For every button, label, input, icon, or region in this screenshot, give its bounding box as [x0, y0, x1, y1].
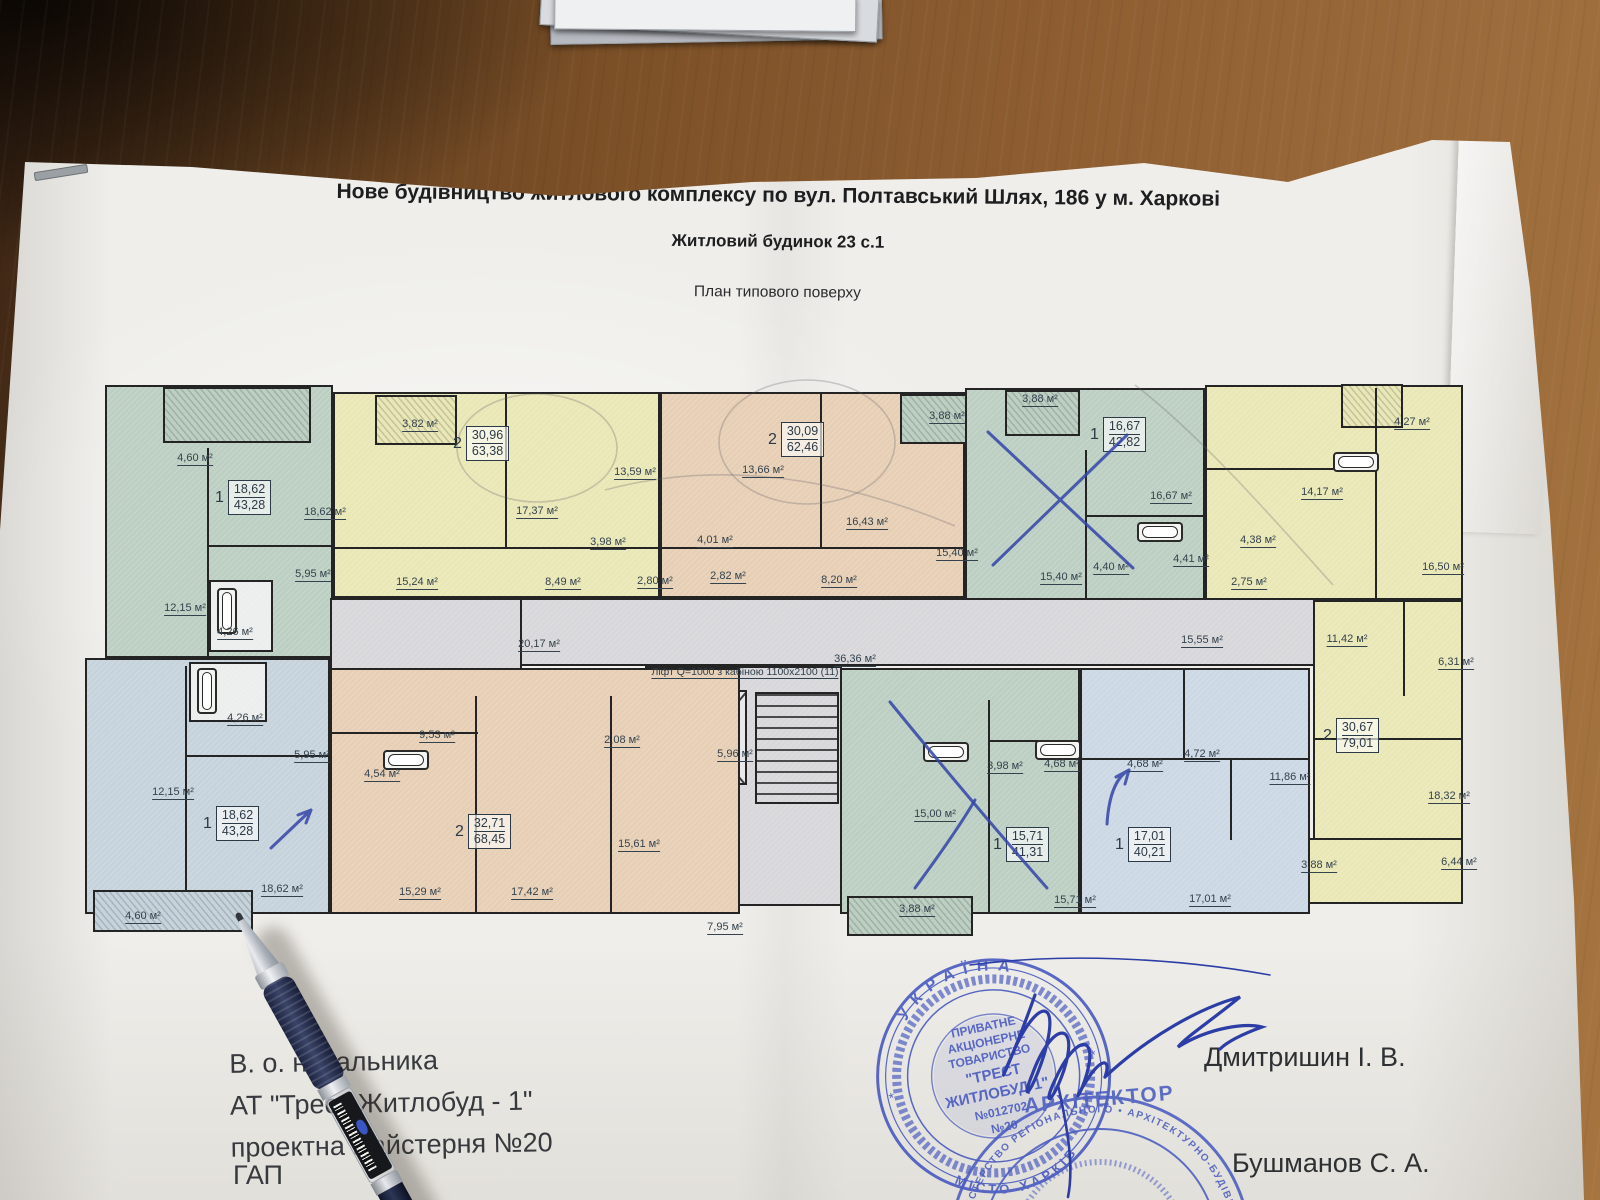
apartment-B3 [840, 668, 1080, 914]
room-area-label: 3,82 м² [402, 418, 438, 432]
photographed-floor-plan-scene: Нове будівництво житлового комплексу по … [0, 0, 1600, 1200]
room-area-label: 12,15 м² [164, 602, 206, 616]
unit-rooms: 2 [455, 823, 464, 841]
room-area-label: 15,40 м² [936, 547, 978, 561]
room-area-label: 11,42 м² [1327, 633, 1368, 647]
unit-label-A4: 1 16,6742,82 [1090, 417, 1146, 452]
room-area-label: 2,75 м² [1231, 576, 1267, 590]
unit-label-A1: 1 18,6243,28 [215, 480, 271, 515]
room-area-label: 5,95 м² [295, 568, 331, 582]
room-area-label: 15,00 м² [914, 808, 956, 822]
room-area-label: 4,60 м² [177, 452, 213, 466]
room-area-label: 16,43 м² [846, 516, 888, 530]
unit-area-total: 62,46 [787, 440, 818, 455]
signature [940, 935, 1360, 1200]
unit-label-A5: 2 30,6779,01 [1323, 718, 1379, 753]
unit-label-B3: 1 15,7141,31 [993, 827, 1049, 862]
room-area-label: 2,82 м² [710, 570, 746, 584]
stacked-sheet [554, 0, 856, 32]
room-area-label: 4,26 м² [227, 712, 263, 726]
room-area-label: 36,36 м² [834, 653, 876, 667]
room-area-label: 11,86 м² [1270, 771, 1311, 785]
room-area-label: 17,37 м² [516, 505, 558, 519]
room-area-label: 13,66 м² [742, 464, 784, 478]
footer-line-2: АТ "Трест Житлобуд - 1" [230, 1079, 553, 1127]
unit-area-total: 43,28 [234, 498, 265, 513]
unit-area-living: 30,96 [472, 428, 503, 444]
unit-area-living: 18,62 [234, 482, 265, 498]
elevator-note: Ліфт Q=1000 з кабіною 1100х2100 (11) [651, 666, 838, 679]
unit-rooms: 2 [768, 431, 777, 449]
plan-caption: План типового поверху [0, 277, 1557, 309]
unit-rooms: 2 [1323, 727, 1332, 745]
unit-area-living: 32,71 [474, 816, 505, 832]
unit-area-living: 30,09 [787, 424, 818, 440]
unit-label-B2: 2 32,7168,45 [455, 814, 511, 849]
unit-area-total: 42,82 [1109, 435, 1140, 450]
room-area-label: 15,40 м² [1040, 571, 1082, 585]
room-area-label: 20,17 м² [518, 638, 560, 652]
room-area-label: 16,67 м² [1150, 490, 1192, 504]
room-area-label: 14,17 м² [1301, 486, 1343, 500]
unit-area-living: 16,67 [1109, 419, 1140, 435]
room-area-label: 16,50 м² [1422, 561, 1464, 575]
room-area-label: 18,62 м² [261, 883, 303, 897]
room-area-label: 4,38 м² [1240, 534, 1276, 548]
document-title: Нове будівництво житлового комплексу по … [0, 177, 1558, 215]
bathtub-icon [923, 742, 969, 762]
unit-rooms: 1 [1090, 426, 1099, 444]
footer-gap-label: ГАП [233, 1160, 283, 1191]
room-area-label: 17,42 м² [511, 886, 553, 900]
room-area-label: 3,88 м² [929, 410, 965, 424]
room-area-label: 4,60 м² [125, 910, 161, 924]
floor-plan: 4,60 м² 18,62 м² 5,95 м² 12,15 м² 4,26 м… [85, 340, 1475, 940]
unit-area-total: 41,31 [1012, 845, 1043, 860]
room-area-label: 7,95 м² [707, 921, 743, 935]
unit-label-B1: 1 18,6243,28 [203, 806, 259, 841]
bathtub-icon [1035, 740, 1081, 760]
room-area-label: 3,98 м² [590, 536, 626, 550]
bathtub-icon [1333, 452, 1379, 472]
room-area-label: 6,44 м² [1441, 856, 1477, 870]
room-area-label: 4,40 м² [1093, 561, 1129, 575]
room-area-label: 18,32 м² [1428, 790, 1470, 804]
room-area-label: 4,41 м² [1173, 553, 1209, 567]
apartment-B2 [330, 668, 740, 914]
room-area-label: 13,59 м² [614, 466, 656, 480]
room-area-label: 3,88 м² [1301, 859, 1337, 873]
room-area-label: 15,24 м² [396, 576, 438, 590]
room-area-label: 15,55 м² [1181, 634, 1223, 648]
room-area-label: 18,62 м² [304, 506, 346, 520]
unit-rooms: 1 [1115, 836, 1124, 854]
bathtub-icon [1137, 522, 1183, 542]
room-area-label: 15,61 м² [618, 838, 660, 852]
room-area-label: 9,53 м² [419, 729, 455, 743]
room-area-label: 5,95 м² [294, 749, 330, 763]
apartment-B4 [1080, 668, 1310, 914]
room-area-label: 4,27 м² [1394, 416, 1430, 430]
room-area-label: 2,08 м² [604, 734, 640, 748]
unit-rooms: 2 [453, 435, 462, 453]
unit-area-total: 43,28 [222, 824, 253, 839]
room-area-label: 4,68 м² [1127, 758, 1163, 772]
room-area-label: 6,31 м² [1438, 656, 1474, 670]
unit-rooms: 1 [203, 815, 212, 833]
room-area-label: 2,80 м² [637, 575, 673, 589]
room-area-label: 4,01 м² [697, 534, 733, 548]
unit-area-living: 18,62 [222, 808, 253, 824]
unit-label-A2: 2 30,9663,38 [453, 426, 509, 461]
room-area-label: 4,54 м² [364, 768, 400, 782]
unit-area-total: 79,01 [1342, 736, 1373, 751]
room-area-label: 15,71 м² [1054, 894, 1096, 908]
staircase [755, 692, 839, 804]
document-subtitle: Житловий будинок 23 с.1 [0, 225, 1558, 259]
room-area-label: 4,72 м² [1184, 748, 1220, 762]
room-area-label: 3,98 м² [987, 760, 1023, 774]
unit-area-total: 40,21 [1134, 845, 1165, 860]
room-area-label: 3,88 м² [899, 903, 935, 917]
room-area-label: 3,88 м² [1022, 393, 1058, 407]
room-area-label: 17,01 м² [1189, 893, 1231, 907]
unit-rooms: 1 [993, 836, 1002, 854]
room-area-label: 15,29 м² [399, 886, 441, 900]
room-area-label: 4,68 м² [1044, 758, 1080, 772]
room-area-label: 12,15 м² [152, 786, 194, 800]
unit-area-living: 15,71 [1012, 829, 1043, 845]
unit-area-total: 63,38 [472, 444, 503, 459]
unit-area-living: 30,67 [1342, 720, 1373, 736]
room-area-label: 5,96 м² [717, 748, 753, 762]
unit-label-B4: 1 17,0140,21 [1115, 827, 1171, 862]
room-area-label: 8,49 м² [545, 576, 581, 590]
unit-label-A3: 2 30,0962,46 [768, 422, 824, 457]
unit-rooms: 1 [215, 489, 224, 507]
bathtub-icon [383, 750, 429, 770]
bathtub-icon [197, 668, 217, 714]
room-area-label: 8,20 м² [821, 574, 857, 588]
unit-area-living: 17,01 [1134, 829, 1165, 845]
balcony-A1 [163, 387, 311, 443]
unit-area-total: 68,45 [474, 832, 505, 847]
room-area-label: 4,26 м² [217, 626, 253, 640]
footer-line-1: В. о. начальника [229, 1037, 552, 1085]
